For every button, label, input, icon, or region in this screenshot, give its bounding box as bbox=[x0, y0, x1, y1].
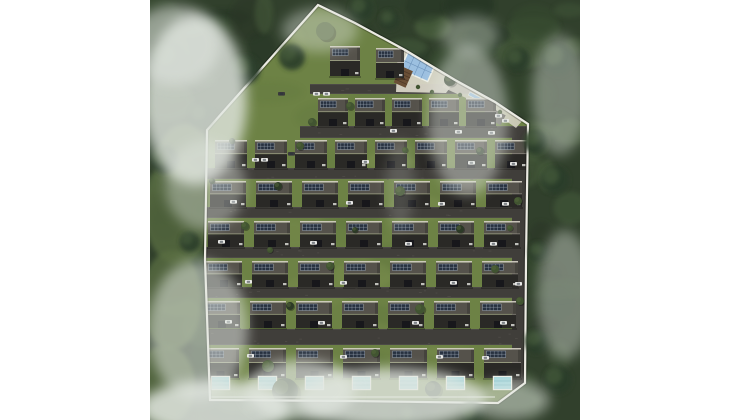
hvac-unit bbox=[373, 324, 377, 326]
entry-porch bbox=[386, 71, 394, 78]
hvac-unit bbox=[322, 164, 326, 166]
entry-porch bbox=[358, 280, 366, 287]
hvac-unit bbox=[522, 164, 526, 166]
hvac-unit bbox=[467, 283, 471, 285]
parked-car bbox=[450, 281, 457, 285]
entry-porch bbox=[362, 200, 370, 207]
parked-car bbox=[412, 321, 419, 325]
hvac-unit bbox=[375, 283, 379, 285]
parked-car bbox=[340, 355, 347, 359]
house bbox=[341, 301, 379, 330]
house bbox=[347, 181, 385, 209]
parked-car bbox=[288, 152, 295, 156]
house bbox=[391, 98, 423, 128]
parked-car bbox=[346, 201, 353, 205]
entry-porch bbox=[402, 321, 410, 328]
house bbox=[345, 221, 383, 249]
entry-porch bbox=[341, 69, 349, 76]
hvac-unit bbox=[425, 203, 429, 205]
hvac-unit bbox=[515, 243, 519, 245]
parked-car bbox=[500, 321, 507, 325]
entry-porch bbox=[360, 240, 368, 247]
hvac-unit bbox=[242, 164, 246, 166]
parked-car bbox=[278, 92, 285, 96]
entry-porch bbox=[496, 280, 504, 287]
parked-car bbox=[261, 158, 268, 162]
page bbox=[0, 0, 730, 420]
house bbox=[329, 46, 361, 78]
parked-car bbox=[340, 281, 347, 285]
hvac-unit bbox=[329, 283, 333, 285]
hvac-unit bbox=[511, 324, 515, 326]
hvac-unit bbox=[343, 122, 347, 124]
parked-car bbox=[405, 242, 412, 246]
parked-car bbox=[502, 202, 509, 206]
fog-patch bbox=[150, 260, 248, 400]
hvac-unit bbox=[287, 203, 291, 205]
parked-car bbox=[515, 282, 522, 286]
entry-porch bbox=[498, 240, 506, 247]
hvac-unit bbox=[417, 122, 421, 124]
hvac-unit bbox=[239, 243, 243, 245]
hvac-unit bbox=[327, 324, 331, 326]
hvac-unit bbox=[377, 243, 381, 245]
parked-car bbox=[247, 354, 254, 358]
house bbox=[317, 98, 349, 128]
hvac-unit bbox=[380, 122, 384, 124]
entry-porch bbox=[452, 240, 460, 247]
entry-porch bbox=[366, 119, 374, 126]
hvac-unit bbox=[281, 324, 285, 326]
fog-patch bbox=[470, 380, 550, 420]
house bbox=[375, 48, 405, 80]
entry-porch bbox=[264, 321, 272, 328]
fog-patch bbox=[165, 140, 245, 230]
entry-porch bbox=[310, 321, 318, 328]
hvac-unit bbox=[423, 243, 427, 245]
hvac-unit bbox=[379, 203, 383, 205]
house bbox=[435, 261, 473, 289]
hvac-unit bbox=[516, 374, 520, 376]
street bbox=[202, 329, 528, 345]
parked-car bbox=[362, 160, 369, 164]
parked-car bbox=[436, 355, 443, 359]
house bbox=[301, 181, 339, 209]
hvac-unit bbox=[399, 74, 403, 76]
entry-porch bbox=[270, 200, 278, 207]
entry-porch bbox=[454, 200, 462, 207]
house bbox=[483, 221, 521, 249]
house bbox=[251, 261, 289, 289]
hvac-unit bbox=[355, 72, 359, 74]
aerial-render-svg bbox=[150, 0, 580, 420]
house bbox=[389, 261, 427, 289]
house bbox=[479, 301, 517, 330]
parked-car bbox=[490, 242, 497, 246]
hvac-unit bbox=[362, 164, 366, 166]
entry-porch bbox=[448, 321, 456, 328]
hvac-unit bbox=[283, 283, 287, 285]
entry-porch bbox=[404, 280, 412, 287]
house bbox=[249, 301, 287, 330]
hvac-unit bbox=[469, 243, 473, 245]
fog-patch bbox=[282, 8, 358, 52]
entry-porch bbox=[356, 321, 364, 328]
house bbox=[437, 221, 475, 249]
shrub bbox=[416, 85, 420, 89]
hvac-unit bbox=[469, 374, 473, 376]
hvac-unit bbox=[282, 164, 286, 166]
entry-porch bbox=[427, 161, 435, 168]
parked-car bbox=[438, 202, 445, 206]
house bbox=[481, 261, 519, 289]
house bbox=[343, 261, 381, 289]
fog-patch bbox=[386, 140, 414, 230]
hvac-unit bbox=[331, 243, 335, 245]
house bbox=[483, 348, 522, 380]
entry-porch bbox=[307, 161, 315, 168]
parked-car bbox=[218, 240, 225, 244]
hvac-unit bbox=[333, 203, 337, 205]
house bbox=[299, 221, 337, 249]
parked-car bbox=[245, 280, 252, 284]
parked-car bbox=[310, 241, 317, 245]
hvac-unit bbox=[237, 283, 241, 285]
entry-porch bbox=[312, 280, 320, 287]
hvac-unit bbox=[419, 324, 423, 326]
entry-porch bbox=[268, 240, 276, 247]
hvac-unit bbox=[285, 243, 289, 245]
house bbox=[354, 98, 386, 128]
house bbox=[255, 181, 293, 209]
entry-porch bbox=[316, 200, 324, 207]
parked-car bbox=[318, 321, 325, 325]
hvac-unit bbox=[421, 283, 425, 285]
fog-patch bbox=[428, 45, 508, 195]
parked-car bbox=[252, 158, 259, 162]
entry-porch bbox=[347, 161, 355, 168]
entry-porch bbox=[329, 119, 337, 126]
house bbox=[254, 140, 288, 170]
hvac-unit bbox=[471, 203, 475, 205]
fog-patch bbox=[245, 360, 355, 420]
parked-car bbox=[313, 92, 320, 96]
entry-porch bbox=[267, 161, 275, 168]
hvac-unit bbox=[465, 324, 469, 326]
house bbox=[433, 301, 471, 330]
parked-car bbox=[482, 356, 489, 360]
parked-car bbox=[510, 162, 517, 166]
site-plan-render bbox=[150, 0, 580, 420]
parked-car bbox=[323, 92, 330, 96]
house bbox=[253, 221, 291, 249]
house bbox=[295, 301, 333, 330]
entry-porch bbox=[403, 119, 411, 126]
entry-porch bbox=[266, 280, 274, 287]
house bbox=[334, 140, 368, 170]
parked-car bbox=[390, 129, 397, 133]
